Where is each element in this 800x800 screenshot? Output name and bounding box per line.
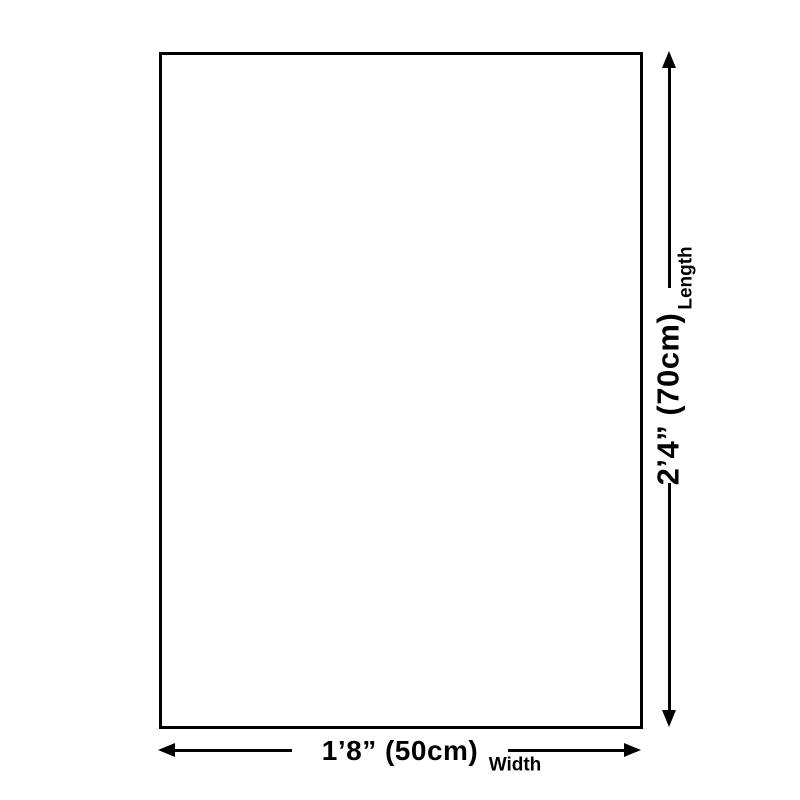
size-diagram: 1’8” (50cm) Width 2’4” (70cm) Length	[0, 0, 800, 800]
length-arrow-top-head-icon	[662, 51, 676, 68]
length-arrow-top-segment	[668, 67, 671, 288]
length-dimension-label: Length	[677, 246, 696, 309]
width-arrow-right-head-icon	[624, 743, 641, 757]
product-outline	[159, 52, 643, 729]
width-arrow-right-segment	[508, 749, 625, 752]
width-dimension-value: 1’8” (50cm)	[322, 737, 478, 765]
width-dimension-label: Width	[489, 756, 542, 775]
length-dimension-value: 2’4” (70cm)	[653, 313, 684, 486]
length-arrow-bottom-head-icon	[662, 710, 676, 727]
length-arrow-bottom-segment	[668, 483, 671, 711]
width-arrow-left-segment	[173, 749, 292, 752]
